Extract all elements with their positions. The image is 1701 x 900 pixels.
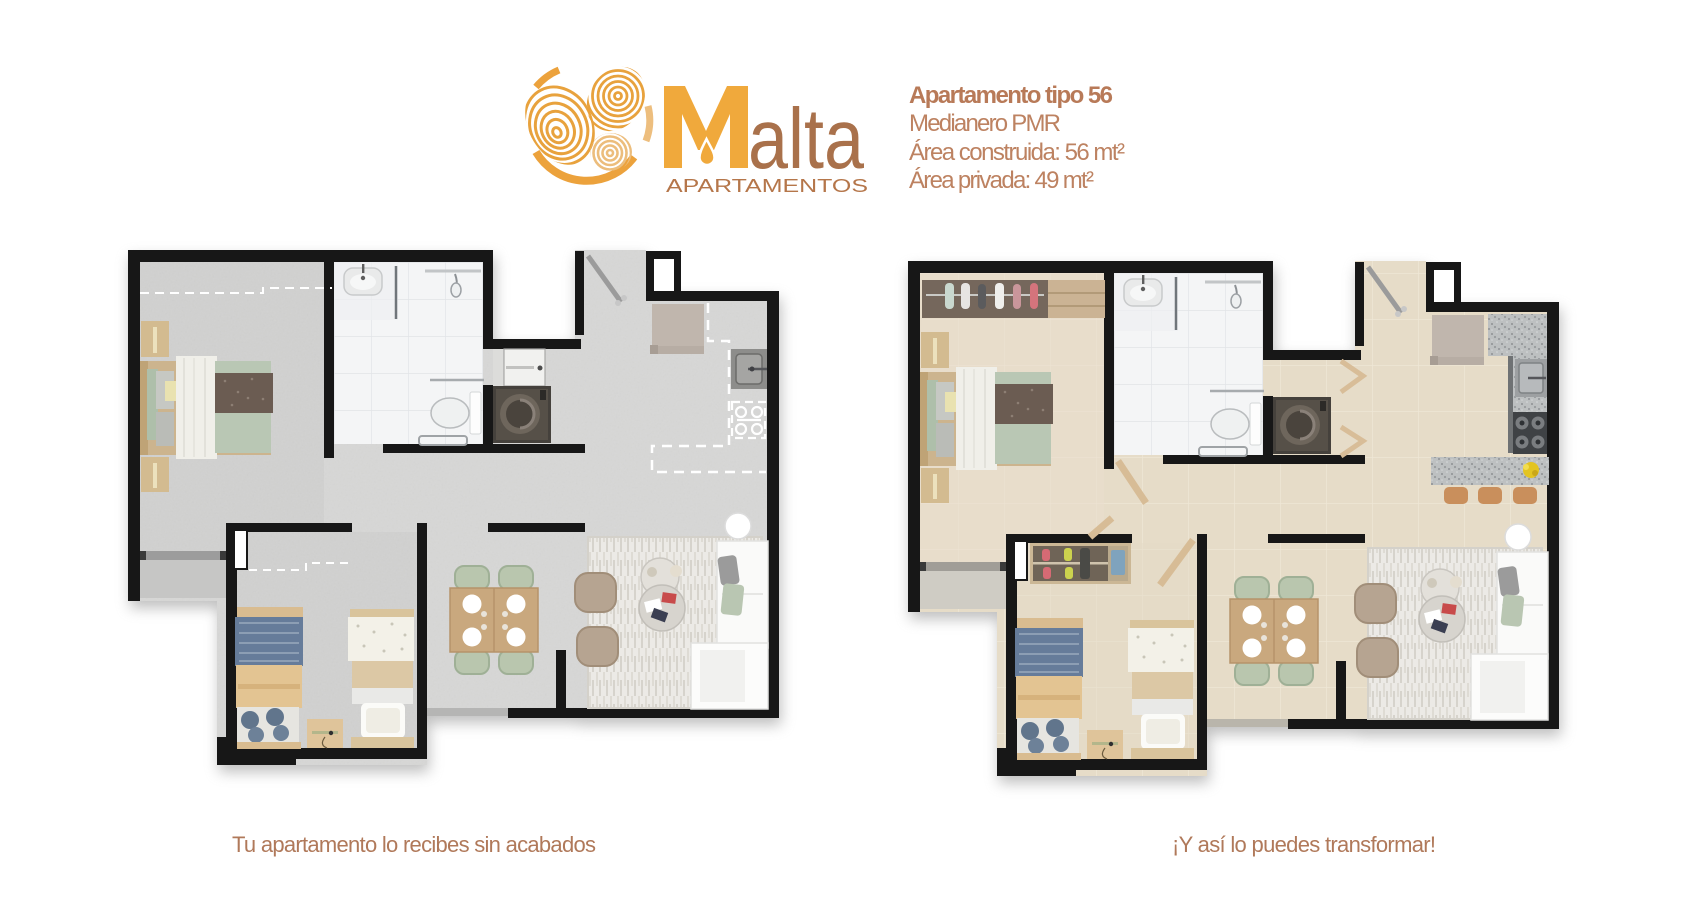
svg-text:Tu apartamento lo recibes sin: Tu apartamento lo recibes sin acabados: [232, 832, 596, 857]
svg-text:Área construida: 56 mt²: Área construida: 56 mt²: [909, 139, 1125, 166]
svg-text:Medianero PMR: Medianero PMR: [909, 110, 1061, 137]
svg-text:¡Y así lo puedes transformar!: ¡Y así lo puedes transformar!: [1172, 832, 1436, 857]
svg-text:alta: alta: [748, 92, 865, 187]
svg-text:Apartamento tipo 56: Apartamento tipo 56: [909, 82, 1113, 109]
svg-text:APARTAMENTOS: APARTAMENTOS: [666, 176, 868, 196]
svg-text:Área privada: 49 mt²: Área privada: 49 mt²: [909, 167, 1094, 194]
